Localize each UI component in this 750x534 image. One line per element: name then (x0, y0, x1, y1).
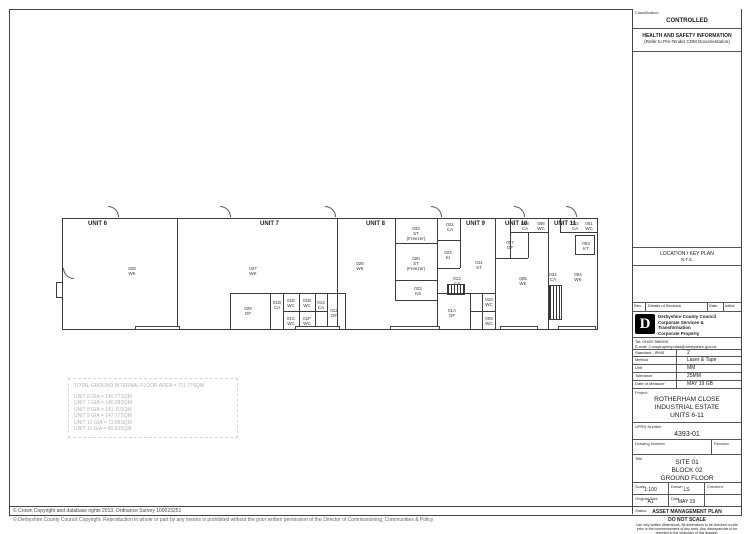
room-label: 020ST(Freezer) (407, 256, 426, 271)
unit-label: UNIT 7 (260, 221, 279, 227)
title-block: Classification CONTROLLED HEALTH AND SAF… (632, 9, 741, 514)
room-label: 008CA (521, 221, 529, 231)
wall (495, 218, 496, 330)
do-not-scale-box: DO NOT SCALE Use only written dimensions… (633, 516, 741, 534)
room-label: 026WK (356, 261, 364, 271)
room-label: 010WC (485, 297, 493, 307)
room-label: 01FWC (303, 316, 311, 326)
door-swing-arc (514, 206, 525, 217)
size-date-row: Original Size A1 Date MAY 19 (633, 495, 741, 507)
title-label: Title (635, 456, 642, 461)
survey-row: Method Laser & Tape (633, 357, 741, 365)
room-label: 001WC (585, 221, 593, 231)
status-value: ASSET MANAGEMENT PLAN (633, 509, 741, 515)
door-swing-arc (566, 206, 577, 217)
room-label: 01CWC (287, 316, 295, 326)
classification-box: Classification CONTROLLED (633, 9, 741, 29)
wall (395, 243, 437, 244)
wall (437, 218, 438, 330)
notes-area (633, 52, 741, 248)
survey-row: Tolerance 25MM (633, 373, 741, 381)
status-row: Status ASSET MANAGEMENT PLAN (633, 507, 741, 516)
checked-label: Checked (707, 484, 723, 489)
project-box: Project ROTHERHAM CLOSE INDUSTRIAL ESTAT… (633, 389, 741, 423)
survey-value: MAY 19 GB (677, 381, 741, 388)
drawn-value: LS (669, 487, 704, 493)
room-label: 014CA (317, 300, 325, 310)
health-safety-box: HEALTH AND SAFETY INFORMATION (Refer to … (633, 29, 741, 52)
title-line: GROUND FLOOR (633, 475, 741, 483)
wall (283, 311, 327, 312)
uprn-label: UPRN Number (635, 424, 662, 429)
survey-label: Date of Measure (633, 381, 677, 388)
room-label: 029OF (244, 306, 252, 316)
wall (437, 268, 460, 269)
door-recess (56, 282, 63, 298)
wall (270, 293, 271, 330)
window (390, 326, 440, 330)
survey-row: Unit MM (633, 365, 741, 373)
wall (528, 232, 529, 258)
wall (437, 293, 495, 294)
wall (460, 218, 461, 268)
survey-label: Method (633, 357, 677, 364)
survey-value: 2 (677, 350, 741, 356)
drawing-sheet: { "sheet": { "classification_label": "Cl… (0, 0, 750, 530)
room-label: 023KS (414, 286, 422, 296)
room-label: 033ST(Freezer) (407, 226, 426, 241)
org-name: Derbyshire County Council (658, 314, 716, 320)
uprn-value: 4393-01 (633, 430, 741, 439)
date-value: MAY 19 (669, 499, 704, 505)
wall (395, 300, 437, 301)
window (295, 326, 340, 330)
room-label: 01AOF (448, 308, 456, 318)
wall (470, 311, 495, 312)
revision-label: Revision (714, 441, 729, 446)
wall (495, 258, 528, 259)
area-schedule: TOTAL GROUND INTERNAL FLOOR AREA = 711.7… (68, 378, 238, 438)
project-line: UNITS 6-11 (633, 412, 741, 420)
copyright-crown: © Crown Copyright and database rights 20… (13, 508, 181, 514)
title-line: BLOCK 02 (633, 467, 741, 475)
wall (510, 232, 548, 233)
stair (549, 285, 562, 320)
unit-label: UNIT 8 (366, 221, 385, 227)
survey-value: 25MM (677, 373, 741, 380)
status-label: Status (635, 508, 646, 513)
room-label: 022KI (444, 250, 452, 260)
wall (345, 293, 346, 330)
room-label: 006WC (537, 221, 545, 231)
org-dept: Corporate Property (658, 331, 716, 337)
room-label: 027WK (249, 266, 257, 276)
wall (395, 218, 396, 300)
location-scale: N.T.S. (633, 257, 741, 263)
door-swing-arc (220, 206, 231, 217)
org-email: E-mail: Consproperty.data@derbyshire.gov… (635, 344, 739, 349)
wall (437, 240, 460, 241)
survey-row: Standard : IPMS 2 (633, 350, 741, 357)
derbyshire-logo-icon: D (635, 314, 655, 334)
room-label: 013CA (453, 276, 461, 286)
survey-label: Unit (633, 365, 677, 372)
room-label: 003KT (582, 241, 590, 251)
survey-value: MM (677, 365, 741, 372)
unit-label: UNIT 9 (466, 221, 485, 227)
room-label: 01DCA (273, 300, 281, 310)
wall (177, 218, 178, 330)
wall (230, 293, 231, 330)
room-label: 021CA (446, 222, 454, 232)
divider (9, 506, 632, 507)
room-label: 012OF (330, 308, 338, 318)
door-swing-arc (431, 206, 442, 217)
uprn-box: UPRN Number 4393-01 (633, 423, 741, 440)
classification-label: Classification (635, 10, 659, 15)
room-label: 002CA (571, 221, 579, 231)
wall (560, 232, 598, 233)
room-label: 009WC (485, 316, 493, 326)
door-swing-arc (108, 206, 119, 217)
door-swing-arc (325, 206, 336, 217)
window (558, 326, 596, 330)
project-line: INDUSTRIAL ESTATE (633, 404, 741, 412)
scale-row: Scale 1:100 Drawn LS Checked (633, 483, 741, 495)
classification-value: CONTROLLED (633, 18, 741, 25)
survey-label: Standard : IPMS (633, 350, 677, 356)
revision-header-row: Rev. Details of Revision Date Initial (633, 303, 741, 312)
window (500, 326, 538, 330)
location-keyplan-header: LOCATION / KEY PLAN N.T.S. (633, 248, 741, 266)
project-line: ROTHERHAM CLOSE (633, 396, 741, 404)
copyright-council: © Derbyshire County Council Copyright. R… (13, 517, 433, 523)
original-size-value: A1 (633, 499, 668, 505)
hs-subtitle: (Refer to Pre-Tender CDM Documentation) (633, 39, 741, 45)
survey-value: Laser & Tape (677, 357, 741, 364)
scale-value: 1:100 (633, 487, 668, 493)
project-label: Project (635, 390, 647, 395)
room-label: 011ST (475, 260, 482, 270)
contact-block: Tel: 01629 580000 E-mail: Consproperty.d… (633, 338, 741, 350)
keyplan-area (633, 266, 741, 303)
drawing-number-label: Drawing Number (635, 441, 665, 446)
unit-label: UNIT 6 (88, 221, 107, 227)
room-label: 007OF (506, 240, 514, 250)
room-label: 004WK (574, 272, 582, 282)
title-line: SITE 01 (633, 459, 741, 467)
wall (327, 293, 328, 330)
survey-row: Date of Measure MAY 19 GB (633, 381, 741, 389)
drawing-number-row: Drawing Number Revision (633, 440, 741, 455)
room-label: 005WK (519, 276, 527, 286)
initial-col: Initial (724, 303, 741, 311)
title-box: Title SITE 01 BLOCK 02 GROUND FLOOR (633, 455, 741, 483)
wall (395, 280, 437, 281)
rev-col: Rev. (633, 303, 646, 311)
disclaimer-text: Use only written dimensions. All dimensi… (633, 523, 741, 534)
room-label: 01BWC (303, 298, 311, 308)
room-label: 034CA (549, 272, 557, 282)
room-label: 01EWC (287, 298, 295, 308)
area-line: UNIT 11 GIA = 66.93SQM (74, 426, 232, 433)
survey-label: Tolerance (633, 373, 677, 380)
window (135, 326, 180, 330)
org-block: D Derbyshire County Council Corporate Se… (633, 312, 741, 338)
details-col: Details of Revision (646, 303, 708, 311)
room-label: 028WK (128, 266, 136, 276)
date-col: Date (708, 303, 724, 311)
